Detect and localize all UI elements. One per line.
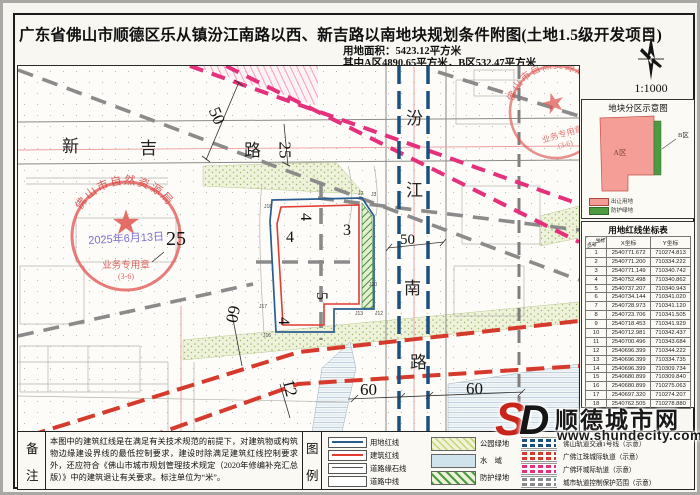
notes-label-char1: 备 <box>26 438 39 457</box>
coord-cell: 710334.735 <box>651 355 691 364</box>
coord-cell: 6 <box>586 293 607 302</box>
setback-right: 3 <box>343 222 351 240</box>
coord-cell: 710344.222 <box>651 346 691 355</box>
legend-swatch-center-line <box>328 476 367 487</box>
coord-cell: 15 <box>586 373 607 382</box>
point-label-j12: J12 <box>375 311 383 317</box>
point-label-j17: J17 <box>259 304 267 310</box>
dim-25-left: 25 <box>166 228 186 251</box>
legend-label-parcel-line: 用地红线 <box>370 438 399 448</box>
coord-row: 112540700.496710343.684 <box>586 337 691 346</box>
legend-label-water: 水 域 <box>480 456 502 466</box>
dim-60-bottom2: 60 <box>466 379 483 399</box>
coord-cell: 12 <box>586 346 607 355</box>
legend-label-curb-line: 道路缘石线 <box>370 464 406 474</box>
watermark-url: www.shundecity.com <box>557 428 700 443</box>
coord-row: 12540771.672710274.813 <box>586 249 691 258</box>
legend-label-ring-rail: 广佛环城际轨道（示意） <box>563 464 636 474</box>
coord-cell: 5 <box>586 284 607 293</box>
coord-cell: 2540771.149 <box>607 266 651 275</box>
coord-col-y: Y坐标 <box>651 237 691 249</box>
road-fenjiang-char1: 汾 <box>406 104 423 129</box>
coord-row: 32540771.149710340.742 <box>586 266 691 275</box>
zone-b-strip <box>362 203 373 308</box>
coord-cell: 710343.684 <box>651 337 691 346</box>
official-stamp-partial: 佛山市自然资源局 ★ 业务专用章 (3-6) <box>497 66 579 169</box>
notes-label-char2: 注 <box>26 465 39 484</box>
coord-cell: 2540712.981 <box>607 329 651 338</box>
stamp2-org-text: 佛山市自然资源局 <box>497 66 579 105</box>
notes-box: 备 注 本图中的建筑红线是在满足有关技术规范的前提下，对建筑物或构筑物边缘建设界… <box>17 431 304 490</box>
coord-cell: 710275.063 <box>651 382 691 391</box>
road-fenjiang-char4: 路 <box>410 348 427 373</box>
coord-cell: 2 <box>586 257 607 266</box>
coord-cell: 8 <box>586 311 607 320</box>
coord-cell: 14 <box>586 364 607 373</box>
notes-text: 本图中的建筑红线是在满足有关技术规范的前提下，对建筑物或构筑物边缘建设界线的最低… <box>50 436 298 484</box>
coord-cell: 2540696.399 <box>607 364 651 373</box>
zone-b-label: B区 <box>678 131 689 139</box>
point-label-j10: J10 <box>369 282 377 288</box>
coord-row: 162540680.899710275.063 <box>586 382 691 391</box>
coord-row: 152540680.899710309.840 <box>586 373 691 382</box>
svg-text:佛山市自然资源局: 佛山市自然资源局 <box>497 66 579 105</box>
dim-50-right: 50 <box>400 232 415 249</box>
zone-b-shape <box>654 121 661 175</box>
coord-cell: 2540723.706 <box>607 311 651 320</box>
legend-swatch-building-line <box>328 450 367 461</box>
coord-corner-bottom: 点号 <box>587 241 597 248</box>
map-scale: 1:1000 <box>617 81 685 96</box>
road-xinji-char2: 吉 <box>140 134 157 159</box>
coord-cell: 2540700.496 <box>607 337 651 346</box>
coord-cell: 710342.437 <box>651 329 691 338</box>
legend-label-protection-zone: 城市轨道控制保护范围（示意） <box>563 477 655 487</box>
coord-cell: 3 <box>586 266 607 275</box>
coord-cell: 9 <box>586 320 607 329</box>
coord-cell: 710341.505 <box>651 311 691 320</box>
coord-cell: 710340.742 <box>651 266 691 275</box>
coord-cell: 2540696.399 <box>607 346 651 355</box>
coord-cell: 2540728.973 <box>607 302 651 311</box>
coord-row: 142540696.399710309.734 <box>586 364 691 373</box>
point-label-j16: J16 <box>263 333 271 339</box>
stamp2-star-icon: ★ <box>537 85 570 122</box>
dim-60-bottom1: 60 <box>360 380 377 400</box>
coord-col-x: X坐标 <box>607 237 651 249</box>
zone-legend-a-swatch <box>589 198 609 206</box>
water-area-river <box>312 342 356 432</box>
road-fenjiang-char2: 江 <box>406 176 423 201</box>
stamp-seal-text: 业务专用章 <box>102 259 150 271</box>
legend-swatch-park <box>431 437 476 451</box>
coord-cell: 11 <box>586 337 607 346</box>
zone-diagram-box: 地块分区示意图 A区 B区 出让用地 防护绿地 <box>581 99 695 219</box>
coord-cell: 4 <box>586 275 607 284</box>
road-xinji-char3: 路 <box>244 136 261 161</box>
coord-cell: 2540718.453 <box>607 320 651 329</box>
coord-cell: 7 <box>586 302 607 311</box>
legend-label-building-line: 建筑红线 <box>370 451 399 461</box>
legend-swatch-ring-rail <box>521 463 557 475</box>
zone-legend-b-swatch <box>589 207 609 215</box>
coord-table: 坐标 点号 X坐标 Y坐标 12540771.672710274.8132254… <box>585 236 691 409</box>
coord-row: 122540696.399710344.222 <box>586 346 691 355</box>
coord-row: 62540734.144710341.020 <box>586 293 691 302</box>
map-drawing: 佛山市自然资源局 ★ 2025年6月13日 业务专用章 (3-6) 佛山市自然资… <box>18 66 579 432</box>
coord-cell: 710274.813 <box>651 249 691 258</box>
legend-swatch-water <box>431 454 476 468</box>
coord-cell: 10 <box>586 329 607 338</box>
coord-cell: 2540737.207 <box>607 284 651 293</box>
coord-cell: 710340.862 <box>651 275 691 284</box>
watermark: S D 顺德城市网 www.shundecity.com <box>493 396 698 446</box>
coord-row: 52540737.207710340.943 <box>586 284 691 293</box>
coord-row: 42540752.498710340.862 <box>586 275 691 284</box>
coord-row: 22540771.200710334.222 <box>586 257 691 266</box>
point-label-j3: J3 <box>371 192 376 198</box>
legend-label-char1: 图 <box>306 438 319 457</box>
official-stamp: 佛山市自然资源局 ★ 2025年6月13日 业务专用章 (3-6) <box>72 173 180 290</box>
coord-corner-cell: 坐标 点号 <box>586 237 607 249</box>
legend-label-center-line: 道路中线 <box>370 477 399 487</box>
coord-cell: 2540734.144 <box>607 293 651 302</box>
dim-25-top: 25 <box>275 142 295 159</box>
setback-mid: 5 <box>312 292 330 300</box>
setback-left: 4 <box>286 229 294 247</box>
point-label-j13: J13 <box>355 311 363 317</box>
coord-cell: 710341.120 <box>651 302 691 311</box>
coord-cell: 1 <box>586 249 607 258</box>
stamp-number: (3-6) <box>118 272 134 281</box>
legend-swatch-protective-green <box>431 471 476 485</box>
legend-swatch-protection-zone <box>521 476 557 488</box>
point-label-j18: J18 <box>264 204 272 210</box>
coord-cell: 710341.929 <box>651 320 691 329</box>
legend-label-intercity: 广佛江珠城际轨道（示意） <box>563 451 642 461</box>
road-fenjiang-char3: 南 <box>404 274 421 299</box>
coordinates-box: 用地红线坐标表 坐标 点号 X坐标 Y坐标 12540771.672710274… <box>581 221 695 408</box>
coord-cell: 2540696.399 <box>607 355 651 364</box>
coord-corner-top: 坐标 <box>596 237 606 244</box>
coord-cell: 2540771.672 <box>607 249 651 258</box>
coord-table-title: 用地红线坐标表 <box>582 224 694 236</box>
legend-swatch-curb-line <box>328 463 367 474</box>
coord-row: 92540718.453710341.929 <box>586 320 691 329</box>
legend-swatch-intercity <box>521 450 557 462</box>
map-sheet: 广东省佛山市顺德区乐从镇汾江南路以西、新吉路以南地块规划条件附图(土地1.5级开… <box>3 3 697 492</box>
coord-cell: 2540680.899 <box>607 373 651 382</box>
coord-cell: 2540680.899 <box>607 382 651 391</box>
coord-cell: 2540752.498 <box>607 275 651 284</box>
coord-row: 132540696.399710334.735 <box>586 355 691 364</box>
coord-table-body: 12540771.672710274.81322540771.200710334… <box>586 249 691 409</box>
coord-cell: 13 <box>586 355 607 364</box>
setback-top: 4 <box>296 213 314 221</box>
coord-cell: 710341.020 <box>651 293 691 302</box>
coord-cell: 710309.734 <box>651 364 691 373</box>
road-xinji-char1: 新 <box>62 132 79 157</box>
zone-legend-b-label: 防护绿地 <box>611 206 633 214</box>
coord-row: 82540723.706710341.505 <box>586 311 691 320</box>
planning-map: 佛山市自然资源局 ★ 2025年6月13日 业务专用章 (3-6) 佛山市自然资… <box>17 65 580 433</box>
legend-label-char2: 例 <box>306 465 319 484</box>
coord-row: 72540728.973710341.120 <box>586 302 691 311</box>
page-title: 广东省佛山市顺德区乐从镇汾江南路以西、新吉路以南地块规划条件附图(土地1.5级开… <box>19 23 667 45</box>
watermark-logo-d: D <box>519 396 549 444</box>
coord-row: 102540712.981710342.437 <box>586 329 691 338</box>
zone-diagram: A区 B区 <box>584 113 692 195</box>
coord-cell: 2540771.200 <box>607 257 651 266</box>
setback-bottom: 4 <box>274 317 292 325</box>
coord-cell: 710334.222 <box>651 257 691 266</box>
north-arrow-icon <box>637 35 665 81</box>
point-label-j2: J2 <box>358 191 363 197</box>
zone-legend-a-label: 出让用地 <box>611 197 633 205</box>
zone-a-label: A区 <box>614 148 627 157</box>
coord-cell: 710309.840 <box>651 373 691 382</box>
zone-a-shape <box>600 116 654 191</box>
legend-label-protective-green: 防护绿地 <box>480 473 509 483</box>
legend-swatch-parcel-line <box>328 437 367 448</box>
coord-cell: 710340.943 <box>651 284 691 293</box>
coord-cell: 16 <box>586 382 607 391</box>
